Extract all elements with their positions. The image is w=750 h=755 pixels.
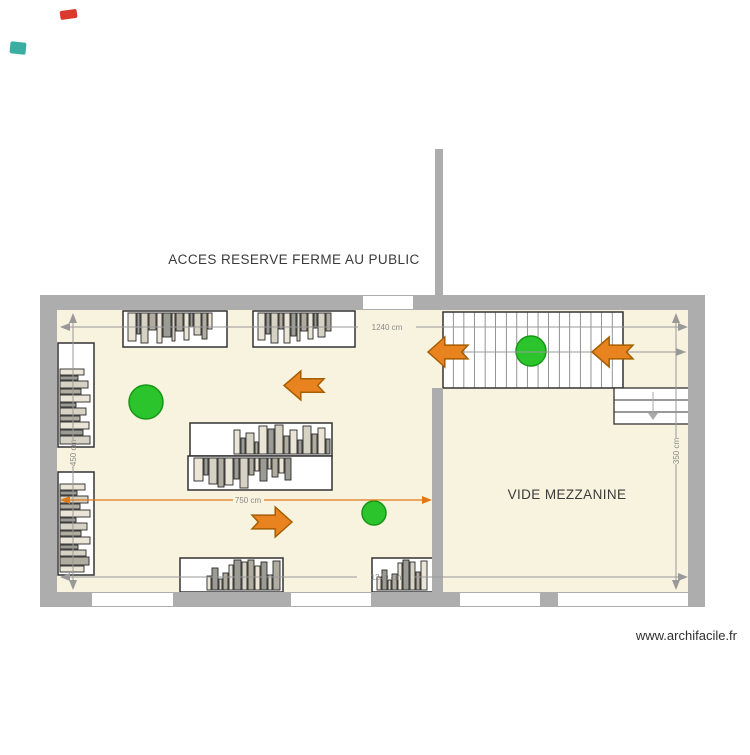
book (60, 566, 84, 572)
book (190, 313, 193, 327)
book (176, 313, 183, 331)
book (163, 313, 171, 337)
opening-bottom-4[interactable] (558, 593, 688, 606)
book (194, 313, 201, 335)
book (60, 504, 80, 509)
book (301, 313, 307, 331)
book (204, 458, 208, 475)
book (242, 562, 247, 590)
book (284, 436, 289, 454)
book (219, 579, 222, 590)
book (246, 433, 254, 454)
book (60, 369, 84, 375)
book (421, 561, 427, 590)
floor-plan-canvas: 1240 cm 1240 cm 450 cm 350 cm 750 cm ACC… (0, 0, 750, 750)
book (291, 313, 296, 336)
book (60, 491, 77, 495)
book (290, 430, 297, 454)
book (60, 531, 81, 536)
book (318, 313, 325, 337)
book (241, 438, 245, 454)
book (212, 568, 218, 590)
book (255, 442, 258, 454)
book (60, 557, 89, 565)
bookshelf-top-left[interactable] (123, 311, 227, 347)
bookshelf-center-lower[interactable] (188, 456, 332, 490)
access-reserve-label[interactable]: ACCES RESERVE FERME AU PUBLIC (168, 252, 419, 267)
book (60, 537, 90, 544)
book (60, 510, 90, 517)
book (157, 313, 162, 343)
mezzanine-label[interactable]: VIDE MEZZANINE (508, 487, 627, 502)
bookshelf-left-wall-upper[interactable] (58, 343, 94, 447)
watermark: www.archifacile.fr (635, 628, 738, 643)
book (260, 458, 267, 481)
opening-bottom-1[interactable] (92, 593, 173, 606)
dim-top-label: 1240 cm (372, 323, 403, 332)
bookshelf-left-wall-lower[interactable] (58, 472, 94, 575)
book (308, 313, 313, 339)
opening-top[interactable] (363, 296, 413, 309)
book (285, 458, 291, 480)
book (403, 560, 409, 590)
book (272, 458, 278, 477)
opening-bottom-2[interactable] (291, 593, 371, 606)
book (209, 458, 217, 484)
book (60, 403, 76, 407)
book (234, 458, 239, 479)
artifact-teal-mark (9, 41, 26, 55)
exterior-spur-wall[interactable] (435, 149, 443, 297)
book (314, 313, 317, 328)
book (273, 561, 280, 590)
book (207, 576, 211, 590)
bookshelf-top-right[interactable] (253, 311, 355, 347)
book (240, 458, 248, 488)
opening-bottom-3[interactable] (460, 593, 540, 606)
book (410, 562, 415, 590)
book (60, 430, 83, 435)
book (202, 313, 207, 339)
book (225, 458, 233, 485)
book (318, 428, 325, 454)
book (279, 458, 284, 473)
book (60, 518, 76, 522)
book (249, 458, 254, 475)
book (60, 389, 81, 394)
book (266, 313, 270, 334)
book (271, 313, 278, 343)
book (60, 381, 88, 388)
book (218, 458, 224, 487)
book (234, 430, 240, 454)
green-circle-marker[interactable] (362, 501, 386, 525)
book (303, 426, 311, 454)
book (141, 313, 148, 343)
book (194, 458, 203, 481)
artifact-red-mark (60, 9, 78, 20)
book (137, 313, 140, 334)
book (255, 458, 259, 471)
book (261, 562, 267, 590)
book (223, 573, 228, 590)
book (248, 560, 254, 590)
book (234, 560, 241, 590)
dim-room-label: 750 cm (235, 496, 262, 505)
book (60, 422, 89, 429)
book (255, 566, 260, 590)
book (416, 572, 420, 590)
book (60, 545, 78, 549)
book (60, 395, 90, 402)
book (268, 429, 274, 454)
book (326, 313, 331, 331)
book (60, 416, 80, 421)
dim-left-label: 450 cm (69, 440, 78, 467)
stair-landing (614, 388, 690, 424)
book (312, 434, 317, 454)
book (259, 426, 267, 454)
book (326, 439, 330, 454)
dim-right-label: 350 cm (672, 438, 681, 465)
book (284, 313, 290, 343)
green-circle-marker[interactable] (516, 336, 546, 366)
bookshelf-bottom-left[interactable] (180, 558, 283, 592)
book (60, 376, 78, 380)
bookshelf-center-upper[interactable] (190, 423, 332, 456)
interior-wall[interactable] (432, 388, 443, 594)
book (298, 440, 302, 454)
book (268, 458, 271, 469)
green-circle-marker[interactable] (129, 385, 163, 419)
dim-bottom-label: 1240 cm (371, 573, 402, 582)
book (275, 425, 283, 454)
